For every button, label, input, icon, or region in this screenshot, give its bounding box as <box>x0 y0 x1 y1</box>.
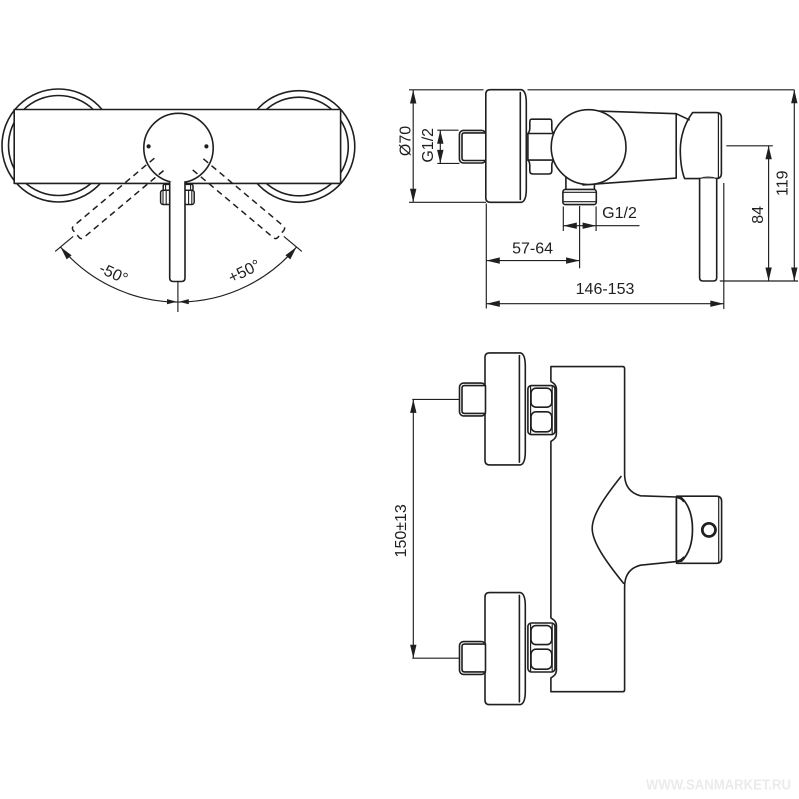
svg-text:G1/2: G1/2 <box>602 205 637 222</box>
svg-text:Ø70: Ø70 <box>397 126 414 156</box>
svg-text:57-64: 57-64 <box>512 241 553 258</box>
svg-text:146-153: 146-153 <box>576 281 635 298</box>
svg-text:G1/2: G1/2 <box>420 128 437 163</box>
svg-text:150±13: 150±13 <box>393 504 410 557</box>
svg-text:119: 119 <box>774 170 791 196</box>
svg-text:WWW.SANMARKET.RU: WWW.SANMARKET.RU <box>646 777 791 793</box>
svg-text:84: 84 <box>750 206 767 224</box>
